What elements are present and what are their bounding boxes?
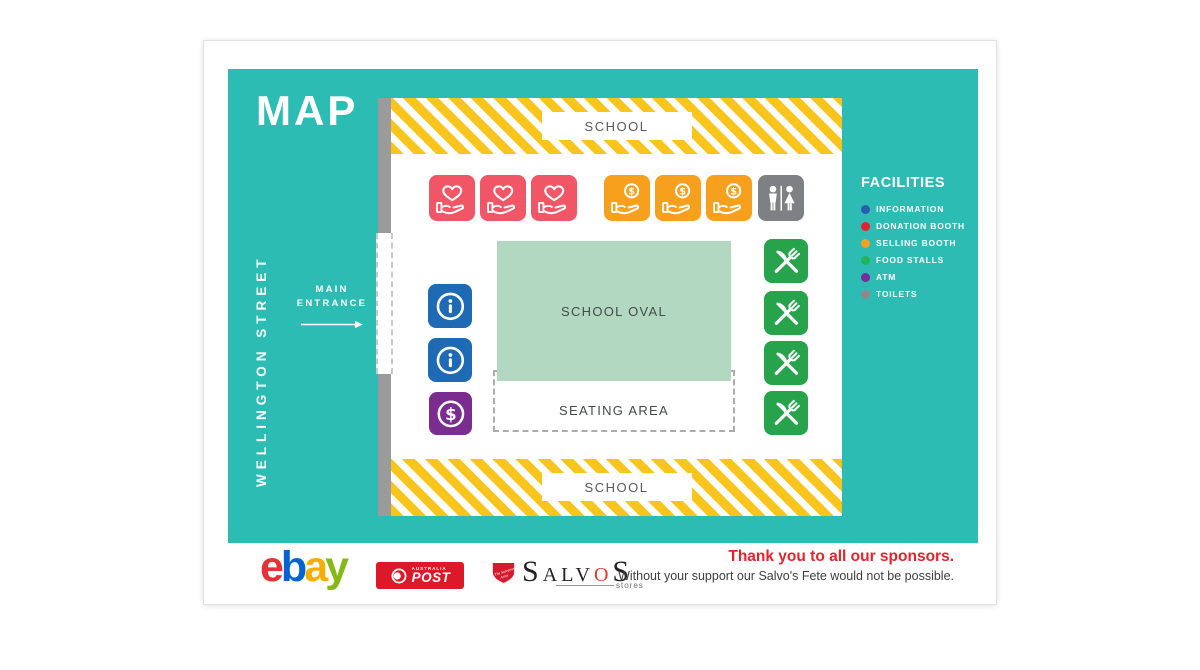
legend-list: INFORMATION DONATION BOOTH SELLING BOOTH… [861,204,991,299]
school-top-label: SCHOOL [542,112,692,140]
legend-label: SELLING BOOTH [876,238,956,248]
legend-dot [861,290,870,299]
legend-item-information: INFORMATION [861,204,991,214]
fete-map-page: MAP WELLINGTON STREET MAIN ENTRANCE SCHO… [203,40,997,605]
facilities-title: FACILITIES [861,175,991,191]
information-icon [428,284,472,328]
entrance-arrow-icon [301,320,363,329]
legend-label: TOILETS [876,289,917,299]
donation-booth-icon [480,175,526,221]
legend-dot [861,273,870,282]
school-bottom-label: SCHOOL [542,473,692,501]
donation-booth-icon [429,175,475,221]
legend-item-food-stalls: FOOD STALLS [861,255,991,265]
main-entrance-line1: MAIN [294,283,370,297]
toilets-icon [758,175,804,221]
school-building-bottom: SCHOOL [391,459,842,516]
main-entrance-gate [376,233,393,374]
ebay-letter: b [281,543,304,591]
seating-area-label: SEATING AREA [559,403,669,418]
australia-post-logo: AUSTRALIA POST [376,562,464,589]
main-entrance-label: MAIN ENTRANCE [294,283,370,333]
school-oval-label: SCHOOL OVAL [561,304,667,319]
salvos-underline [556,585,614,586]
map-area: SCHOOL SCHOOL SEATING AREA SCHOOL OVAL [378,98,842,516]
wellington-street-label: WELLINGTON STREET [254,229,282,513]
selling-booth-icon [655,175,701,221]
facilities-legend: FACILITIES INFORMATION DONATION BOOTH SE… [861,175,991,299]
legend-label: DONATION BOOTH [876,221,965,231]
school-oval: SCHOOL OVAL [497,241,731,381]
school-building-top: SCHOOL [391,98,842,154]
legend-item-donation-booth: DONATION BOOTH [861,221,991,231]
legend-label: INFORMATION [876,204,944,214]
poster-canvas: MAP WELLINGTON STREET MAIN ENTRANCE SCHO… [0,0,1200,670]
ebay-letter: y [325,543,346,591]
legend-dot [861,256,870,265]
map-title: MAP [256,87,358,135]
map-card: MAP WELLINGTON STREET MAIN ENTRANCE SCHO… [228,69,978,543]
ebay-logo: ebay [260,546,346,589]
legend-item-selling-booth: SELLING BOOTH [861,238,991,248]
salvation-army-shield-icon: The Salvation Army [490,559,517,586]
legend-dot [861,205,870,214]
information-icon [428,338,472,382]
food-stall-icon [764,291,808,335]
salvos-stores-logo: The Salvation Army SALVOS stores [490,555,633,595]
salvos-wordmark: SALVOS stores [522,555,633,589]
atm-icon [429,392,472,435]
legend-dot [861,239,870,248]
auspost-ball-icon [390,567,408,585]
food-stall-icon [764,239,808,283]
legend-label: ATM [876,272,896,282]
auspost-name-label: POST [412,571,451,585]
sponsor-thanks-title: Thank you to all our sponsors. [618,548,954,566]
legend-dot [861,222,870,231]
sponsor-thanks: Thank you to all our sponsors. Without y… [618,548,954,583]
selling-booth-icon [604,175,650,221]
food-stall-icon [764,391,808,435]
food-stall-icon [764,341,808,385]
selling-booth-icon [706,175,752,221]
ebay-letter: e [260,543,281,591]
sponsor-thanks-subtitle: Without your support our Salvo's Fete wo… [618,569,954,583]
donation-booth-icon [531,175,577,221]
legend-label: FOOD STALLS [876,255,944,265]
legend-item-atm: ATM [861,272,991,282]
ebay-letter: a [304,543,325,591]
legend-item-toilets: TOILETS [861,289,991,299]
main-entrance-line2: ENTRANCE [294,297,370,311]
